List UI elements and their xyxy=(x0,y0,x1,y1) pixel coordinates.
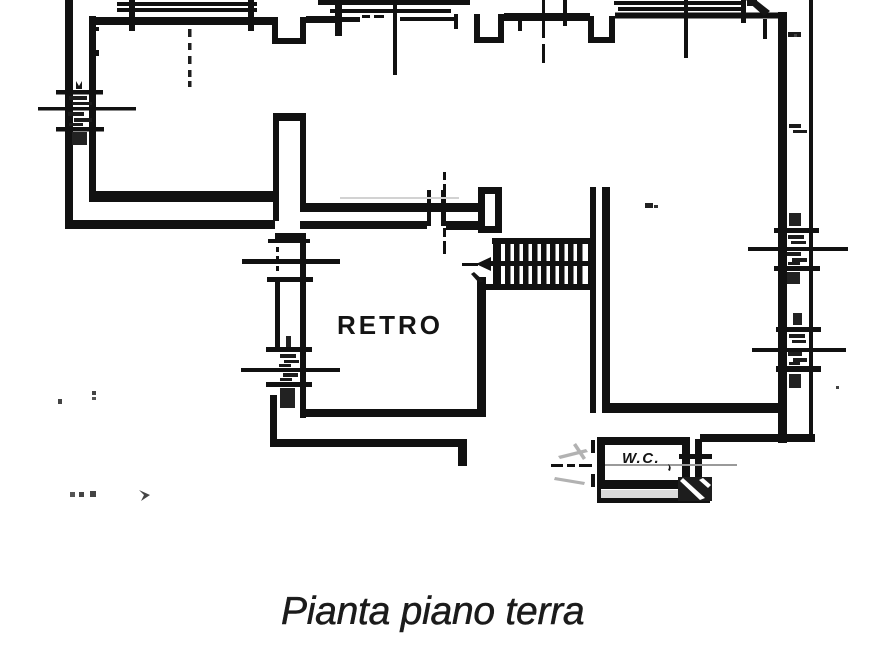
svg-text:W.C.: W.C. xyxy=(622,450,660,467)
svg-text:RETRO: RETRO xyxy=(337,310,443,340)
